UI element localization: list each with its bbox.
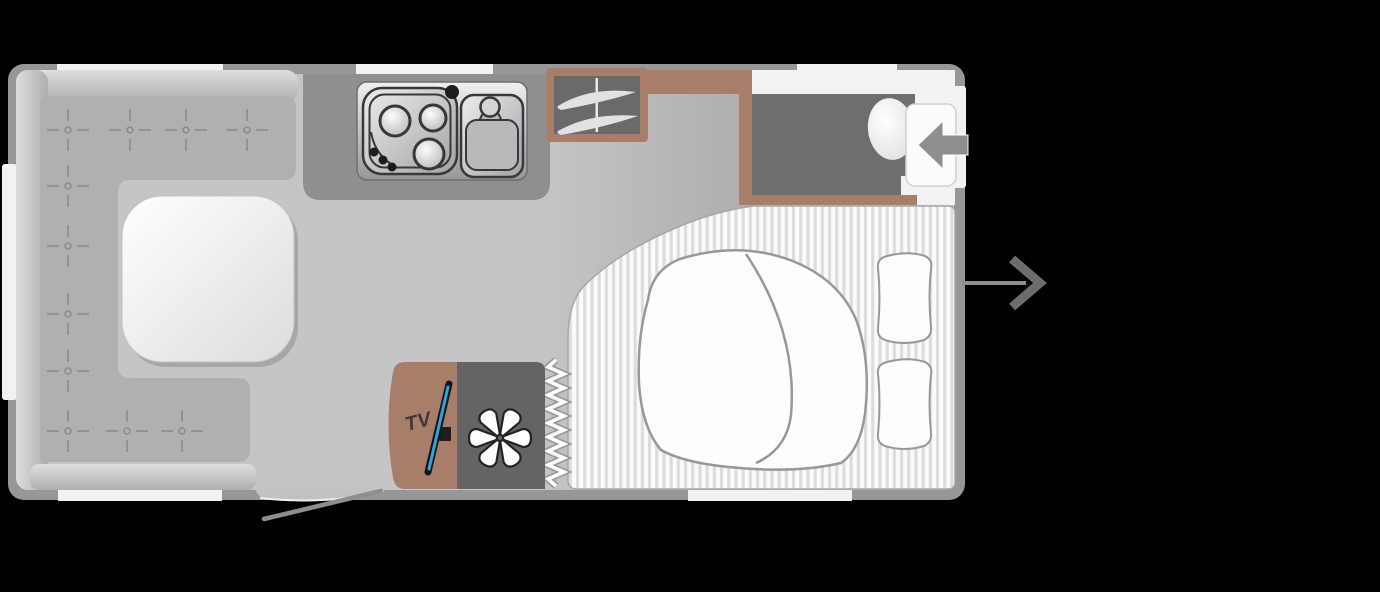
seat-backrest-bottom xyxy=(30,464,256,490)
pillow-bottom xyxy=(878,359,932,449)
washroom xyxy=(739,70,956,205)
washroom-wall-left xyxy=(739,70,752,205)
tap-icon xyxy=(481,98,500,117)
hob xyxy=(363,85,459,174)
heater-unit xyxy=(457,362,545,489)
exit-arrow-icon xyxy=(963,259,1040,307)
washroom-wall-bottom xyxy=(749,195,917,205)
window-top-kitchen xyxy=(356,64,493,74)
lounge-table xyxy=(122,196,294,362)
window-bottom-lounge xyxy=(58,490,222,501)
washroom-front-wall xyxy=(646,70,750,94)
wardrobe xyxy=(546,68,648,142)
tv-unit: TV xyxy=(389,362,458,489)
burner xyxy=(380,106,410,136)
window-bottom-bed xyxy=(688,490,852,501)
kitchen xyxy=(303,74,550,200)
burner xyxy=(414,139,444,169)
burner xyxy=(420,105,446,131)
floorplan-canvas: TV xyxy=(0,0,1380,592)
window-left-lounge xyxy=(2,164,17,400)
ignition-dot xyxy=(445,85,459,99)
entrance xyxy=(256,489,384,519)
screenshot-root: TV xyxy=(0,0,1380,592)
sink-basin xyxy=(466,120,518,170)
sink xyxy=(461,95,523,177)
pillow-top xyxy=(878,253,932,343)
